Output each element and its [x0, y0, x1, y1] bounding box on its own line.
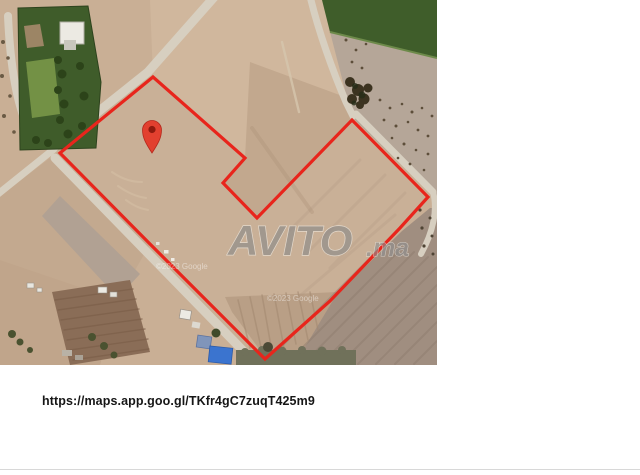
- avito-watermark-brand: AVITO: [227, 217, 352, 264]
- satellite-map: ©2023 Google ©2023 Google AVITO .ma: [0, 0, 437, 365]
- screenshot-page: ©2023 Google ©2023 Google AVITO .ma http…: [0, 0, 640, 475]
- map-share-url: https://maps.app.goo.gl/TKfr4gC7zuqT425m…: [42, 394, 315, 408]
- map-credit-text: ©2023 Google: [156, 262, 208, 271]
- map-credit-text: ©2023 Google: [267, 294, 319, 303]
- avito-watermark-tld: .ma: [366, 234, 409, 262]
- bottom-divider: [0, 469, 640, 470]
